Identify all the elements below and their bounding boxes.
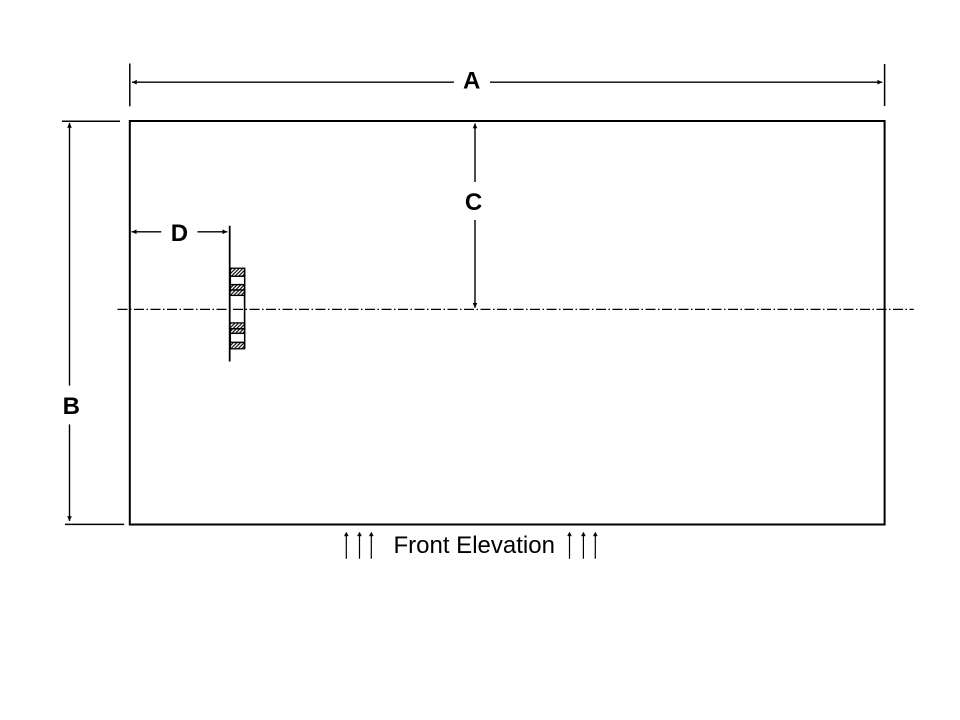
svg-text:D: D bbox=[171, 220, 188, 247]
svg-text:A: A bbox=[463, 68, 480, 95]
svg-text:Front Elevation: Front Elevation bbox=[394, 532, 555, 559]
svg-text:B: B bbox=[63, 393, 80, 420]
svg-text:C: C bbox=[465, 189, 482, 216]
